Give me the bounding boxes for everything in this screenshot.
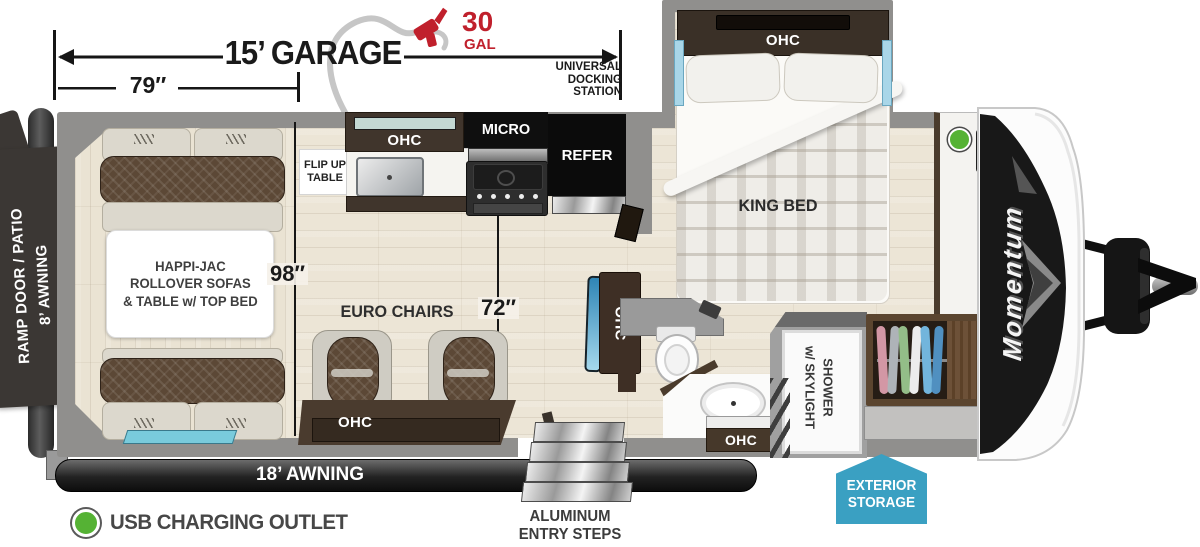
refrigerator-drawer (552, 196, 626, 214)
oven-door (473, 203, 543, 214)
stove (466, 161, 548, 216)
usb-legend-dot (72, 509, 100, 537)
euro-chairs-label: EURO CHAIRS (338, 302, 456, 322)
headboard-accent (882, 40, 892, 106)
ohc-box-front: OHC (706, 428, 776, 452)
entry-steps (522, 422, 634, 506)
sofa-stitch-mark (134, 134, 154, 144)
garage-width-label: 79″ (116, 72, 180, 99)
wardrobe-wood-panel (947, 321, 978, 399)
shower-stall: SHOWER w/ SKYLIGHT (770, 312, 867, 458)
king-bed: OHC KING BED (676, 10, 888, 302)
arrowhead-left (58, 49, 74, 65)
front-storage-block (864, 406, 987, 440)
usb-legend-label: USB CHARGING OUTLET (110, 511, 347, 535)
docking-station-label: UNIVERSAL DOCKING STATION (544, 61, 622, 99)
headboard-cabinet: OHC (677, 10, 889, 56)
awning-bar (55, 459, 757, 492)
kitchen-ohc-label: OHC (346, 132, 463, 149)
dim-72-label: 72″ (478, 297, 519, 319)
vanity-ohc-label: OHC (725, 432, 757, 448)
pillow (685, 52, 781, 103)
clothes-item (931, 326, 944, 394)
living-ohc-cabinet: OHC (298, 400, 516, 445)
garage-length-label: 15’ GARAGE (224, 34, 403, 72)
cabinet-glass (354, 117, 456, 130)
sink-drain (731, 401, 736, 406)
entry-steps-label: ALUMINUM ENTRY STEPS (503, 508, 637, 544)
stove-knob (477, 194, 482, 199)
sofa-bolster (100, 358, 285, 404)
flip-up-table: FLIP UP TABLE (299, 149, 351, 195)
step-tread (529, 442, 627, 462)
floorplan-diagram: 15’ GARAGE 79″ 30 GAL UNIVERSAL DOCKING … (0, 0, 1200, 547)
wardrobe (866, 314, 985, 406)
living-ohc-label: OHC (338, 414, 372, 431)
sofas-label-box: HAPPI-JAC ROLLOVER SOFAS & TABLE w/ TOP … (106, 230, 274, 338)
fuel-quantity: 30 (462, 6, 493, 38)
awning-label: 18’ AWNING (238, 464, 382, 486)
bath-cabinet-foot (618, 370, 636, 392)
shower-label: SHOWER w/ SKYLIGHT (801, 323, 836, 453)
brand-logo: Momentum (997, 141, 1027, 425)
stove-knob (519, 194, 524, 199)
sofa-stitch-mark (226, 134, 246, 144)
shower-door-stripes (768, 378, 790, 458)
stove-knob (533, 194, 538, 199)
bedroom-ohc-label: OHC (678, 32, 888, 49)
sofa-bottom (100, 348, 283, 440)
chair-seam (447, 369, 489, 377)
sofa-bolster (100, 156, 285, 204)
pillow (783, 52, 879, 103)
sofa-stitch-mark (226, 418, 246, 428)
sink-drain (387, 175, 392, 180)
step-tread (521, 482, 633, 502)
usb-outlet-dot-bedroom (948, 128, 971, 151)
stove-knob (505, 194, 510, 199)
microwave-label-box: MICRO (464, 112, 548, 148)
stove-burner (497, 170, 515, 186)
vanity-ohc-box: OHC (706, 416, 774, 450)
step-tread (525, 462, 630, 482)
headboard-accent (674, 40, 684, 106)
kitchen-ohc-cabinet: OHC (345, 112, 464, 152)
sofas-label: HAPPI-JAC ROLLOVER SOFAS & TABLE w/ TOP … (123, 258, 258, 311)
dim-tick (297, 72, 300, 102)
counter-edge (346, 196, 472, 212)
king-bed-label: KING BED (721, 196, 835, 216)
stove-knob (491, 194, 496, 199)
ramp-door-label: RAMP DOOR / PATIO 8’ AWNING (3, 164, 62, 406)
fuel-nozzle-icon (411, 7, 460, 53)
dim-98-label: 98″ (267, 263, 308, 285)
fuel-unit: GAL (464, 36, 496, 53)
step-tread (533, 422, 625, 442)
dim-end-bar (53, 30, 56, 100)
garage-mat (123, 430, 238, 444)
exterior-storage-badge: EXTERIOR STORAGE (836, 454, 927, 524)
sofa-seat (102, 202, 283, 232)
toilet-seat (664, 344, 690, 376)
kitchen-sink (356, 157, 424, 197)
sofa-top (100, 126, 283, 230)
chair-seam (331, 369, 373, 377)
headboard-vent (716, 15, 850, 30)
sofa-stitch-mark (134, 418, 154, 428)
exterior-storage-label: EXTERIOR STORAGE (839, 478, 925, 513)
refrigerator: REFER (548, 114, 626, 196)
